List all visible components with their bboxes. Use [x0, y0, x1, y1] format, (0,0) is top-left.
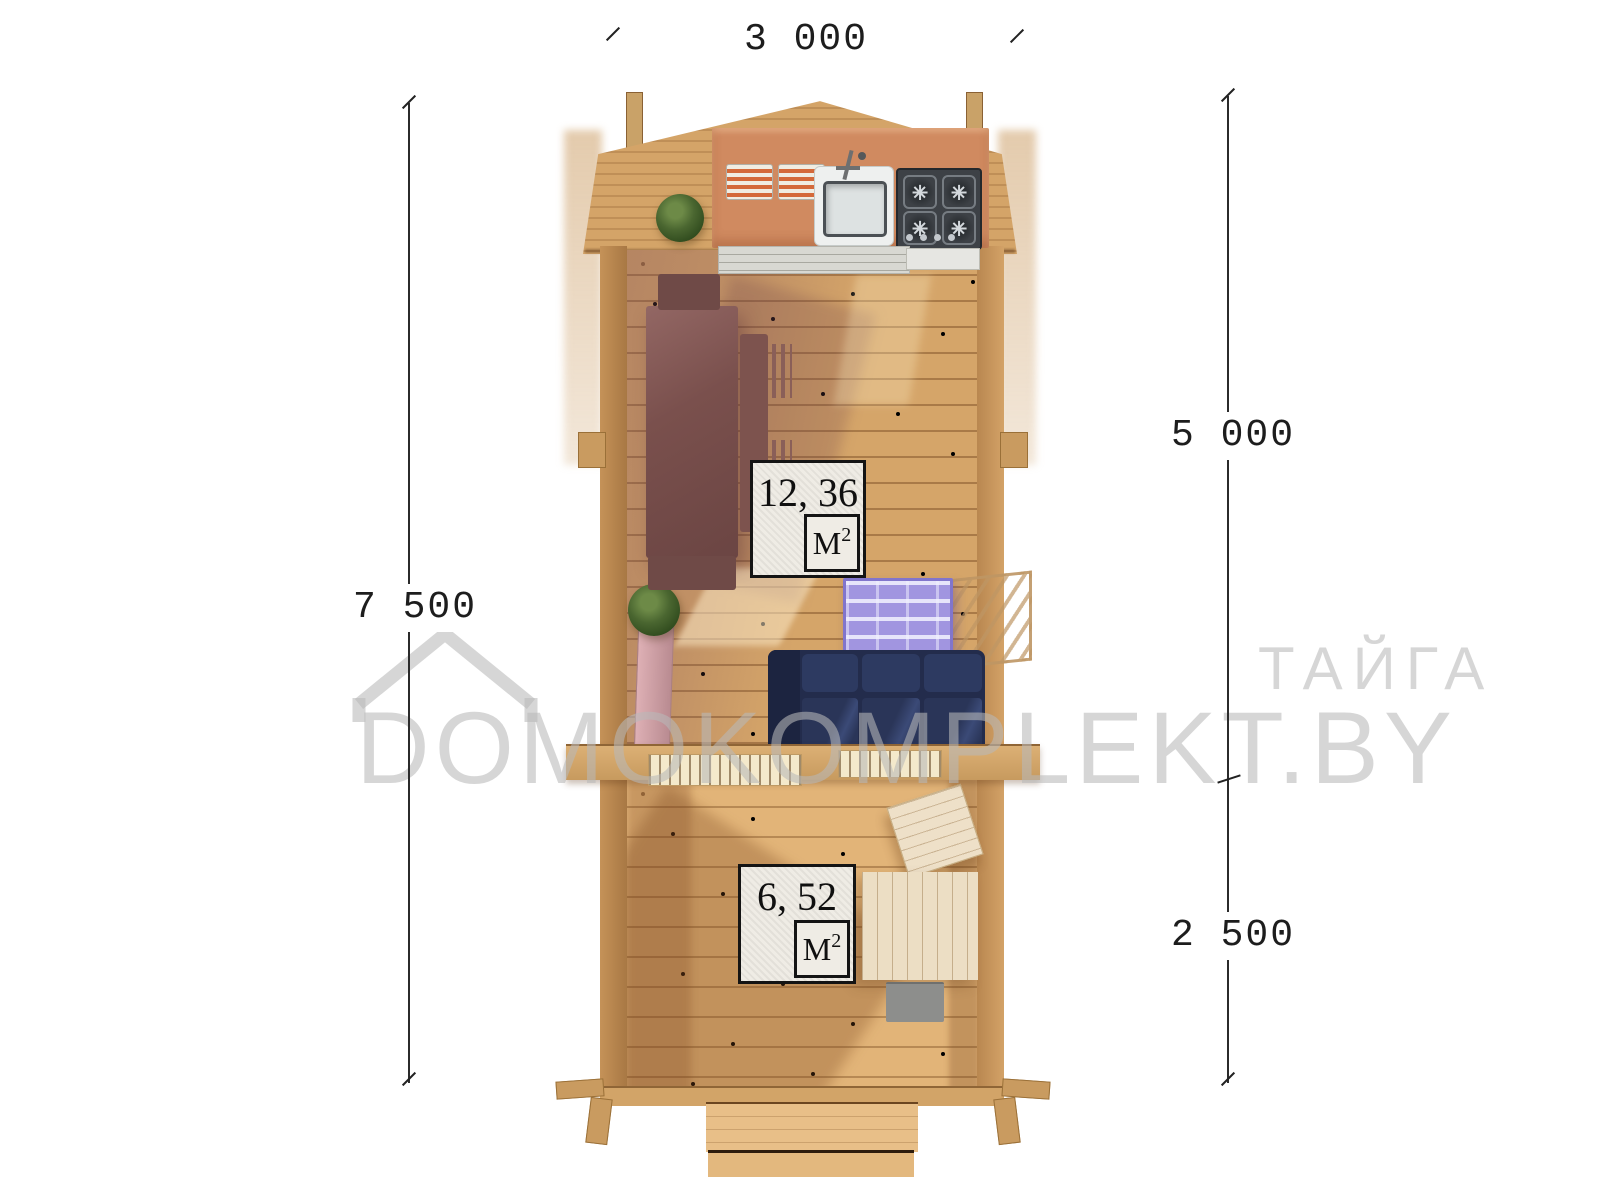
area-label-terrace: 6, 52 М2: [738, 864, 856, 984]
hob-knob-icon: [920, 234, 927, 241]
faucet-knob-icon: [858, 152, 866, 160]
area-unit-box: М2: [804, 514, 860, 572]
entry-step-lower: [708, 1150, 914, 1177]
area-label-main-room: 12, 36 М2: [750, 460, 866, 578]
counter-drawers: [718, 246, 910, 274]
dimension-tick: [1010, 29, 1024, 43]
corner-log-br-h: [1001, 1078, 1050, 1099]
floorplan-canvas: ++ ++ ++ ++ 12, 36 М2: [0, 0, 1600, 1200]
burner-icon: ++: [942, 211, 976, 245]
wall-left: [600, 246, 627, 1096]
corner-log-bl-h: [555, 1078, 604, 1099]
terrace-table-pedestal: [886, 982, 944, 1022]
sofa-back-cushion: [862, 654, 920, 692]
sink-basin: [823, 181, 887, 237]
log-end-right: [1000, 432, 1028, 468]
dimension-tick: [606, 27, 620, 41]
hob-knob-icon: [948, 234, 955, 241]
corner-log-br-v: [993, 1097, 1020, 1145]
hob-knob-icon: [906, 234, 913, 241]
dining-table: [646, 306, 738, 558]
hob-knob-icon: [934, 234, 941, 241]
area-unit-exponent: 2: [841, 525, 851, 545]
area-value: 6, 52: [741, 877, 853, 917]
area-unit-letter: М: [813, 527, 841, 559]
terrace-table: [862, 872, 978, 980]
plant-pot-top: [656, 194, 704, 242]
corner-log-bl-v: [585, 1097, 612, 1145]
cabinet-front-1: [726, 164, 773, 200]
chair-back-slats-1: [772, 344, 792, 398]
log-end-left: [578, 432, 606, 468]
sofa-back-cushion: [924, 654, 982, 692]
dimension-top-width: 3 000: [700, 16, 912, 64]
dining-chair-bottom: [648, 556, 736, 590]
burner-icon: ++: [942, 175, 976, 209]
burner-icon: ++: [903, 175, 937, 209]
counter-drawer-right: [906, 248, 980, 270]
area-unit-box: М2: [794, 920, 850, 978]
plant-pot-middle: [628, 584, 680, 636]
dimension-right-main: 5 000: [1140, 412, 1326, 460]
watermark-site: DOMOKOMPLEKT.BY: [356, 690, 1457, 807]
area-unit-letter: М: [803, 933, 831, 965]
dimension-right-terrace: 2 500: [1140, 912, 1326, 960]
entry-step-upper: [706, 1102, 918, 1152]
sofa-back-cushion: [802, 654, 858, 692]
gas-hob: ++ ++ ++ ++: [896, 168, 982, 250]
faucet-arm-icon: [836, 166, 860, 170]
area-unit-exponent: 2: [831, 931, 841, 951]
area-value: 12, 36: [753, 473, 863, 513]
dining-chair-top: [658, 274, 720, 310]
dimension-left-total: 7 500: [322, 584, 508, 632]
kitchen-sink: [814, 166, 894, 246]
